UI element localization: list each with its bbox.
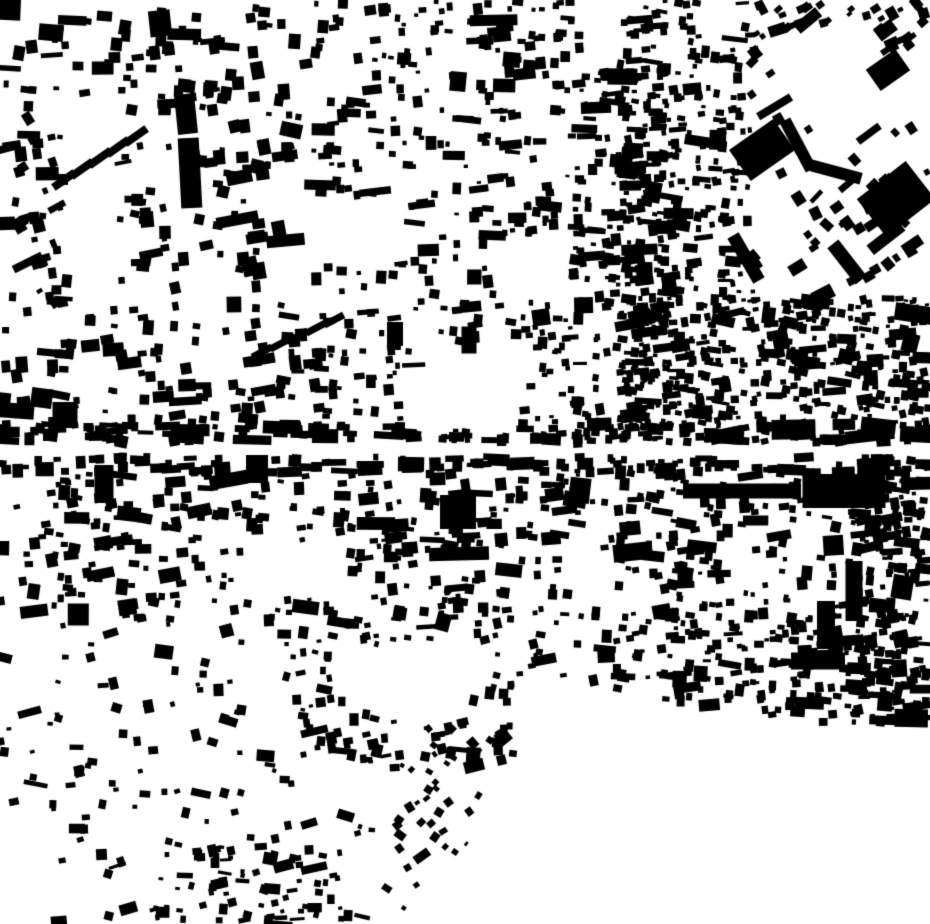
figure-ground-map-canvas: [0, 0, 930, 924]
map-viewport: [0, 0, 930, 924]
